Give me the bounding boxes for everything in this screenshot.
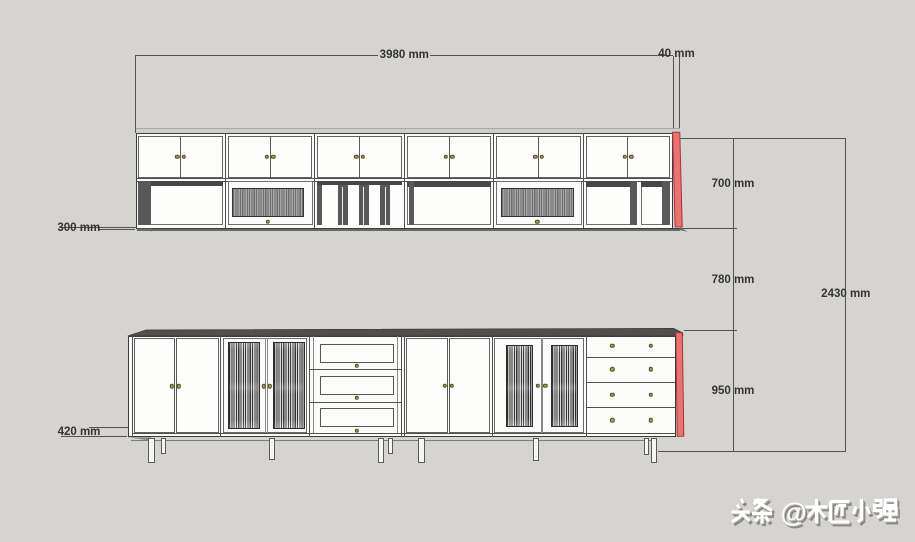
svg-text:@: @ [781, 498, 807, 528]
